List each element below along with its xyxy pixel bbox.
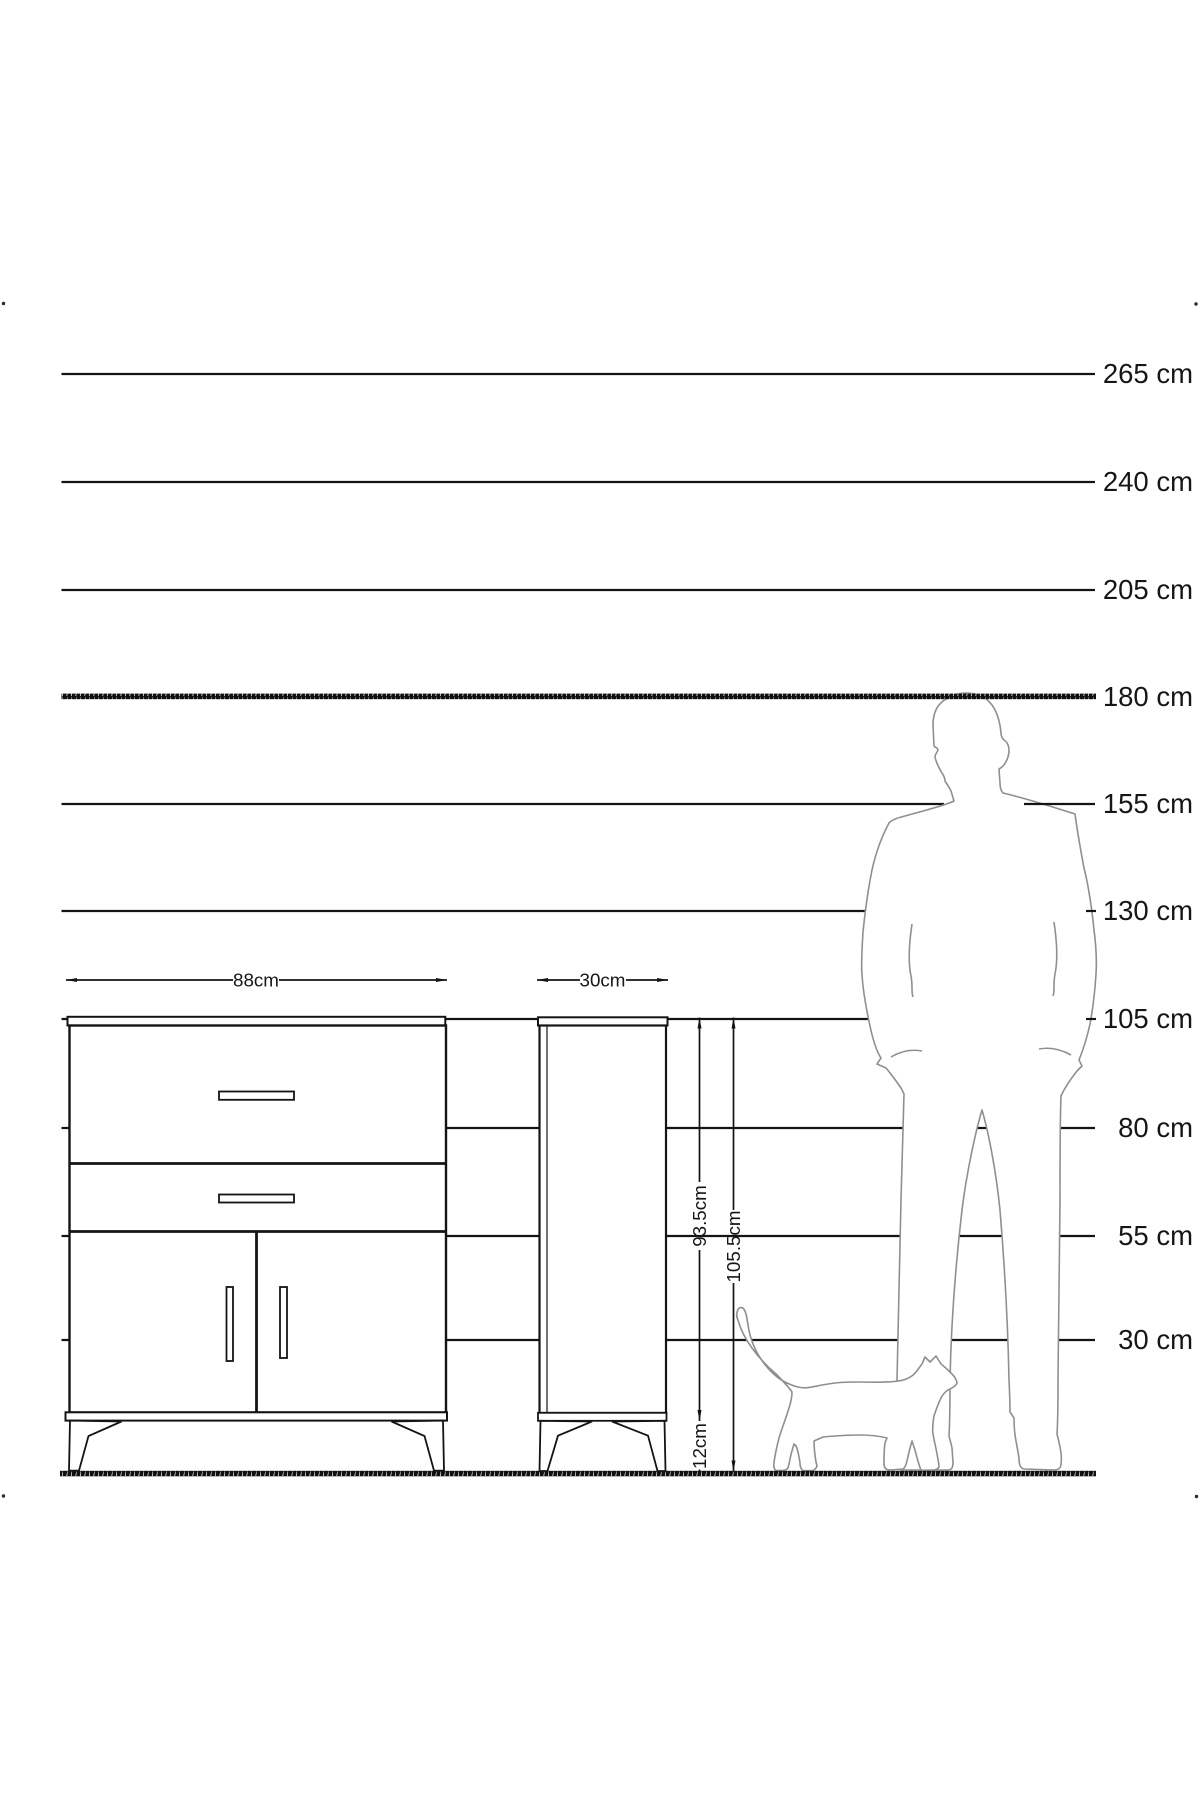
- svg-text:88cm: 88cm: [233, 970, 279, 991]
- svg-text:130 cm: 130 cm: [1103, 895, 1193, 926]
- svg-text:205 cm: 205 cm: [1103, 574, 1193, 605]
- svg-text:12cm: 12cm: [689, 1423, 710, 1469]
- svg-text:30cm: 30cm: [580, 970, 626, 991]
- svg-text:240 cm: 240 cm: [1103, 466, 1193, 497]
- svg-text:180 cm: 180 cm: [1103, 681, 1193, 712]
- svg-text:105.5cm: 105.5cm: [723, 1210, 744, 1282]
- svg-text:105 cm: 105 cm: [1103, 1003, 1193, 1034]
- svg-text:265 cm: 265 cm: [1103, 358, 1193, 389]
- svg-text:93.5cm: 93.5cm: [689, 1185, 710, 1247]
- svg-text:155 cm: 155 cm: [1103, 788, 1193, 819]
- svg-text:30 cm: 30 cm: [1118, 1324, 1193, 1355]
- svg-text:55 cm: 55 cm: [1118, 1220, 1193, 1251]
- svg-text:80 cm: 80 cm: [1118, 1112, 1193, 1143]
